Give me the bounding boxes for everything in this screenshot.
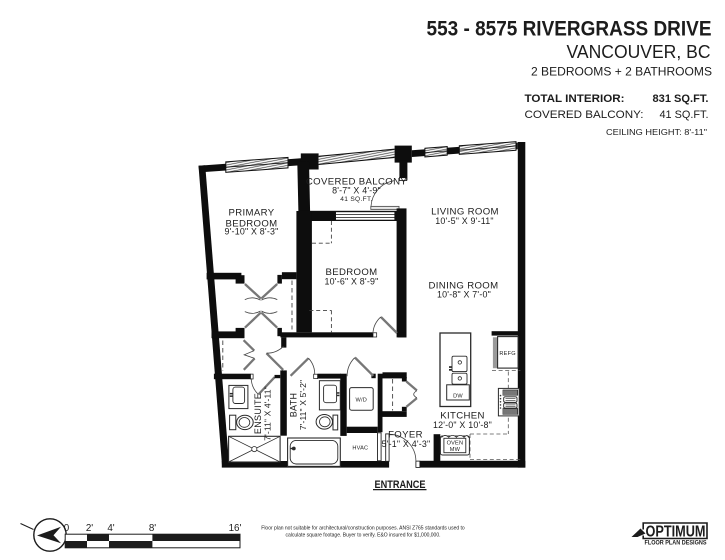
svg-text:OPTIMUM: OPTIMUM: [646, 523, 706, 540]
svg-text:calculate square footage. Buye: calculate square footage. Buyer to verif…: [286, 533, 441, 539]
svg-text:DW: DW: [453, 393, 463, 399]
svg-text:REFG: REFG: [499, 351, 515, 357]
svg-text:9'-10" X 8'-3": 9'-10" X 8'-3": [225, 227, 279, 237]
svg-text:Floor plan not suitable for ar: Floor plan not suitable for architectura…: [261, 526, 465, 532]
svg-text:16': 16': [229, 523, 242, 534]
svg-text:10'-8" X 7'-0": 10'-8" X 7'-0": [437, 290, 491, 300]
svg-text:41 SQ.FT.: 41 SQ.FT.: [660, 109, 709, 121]
svg-text:7'-11" X 5'-2": 7'-11" X 5'-2": [298, 380, 308, 430]
svg-text:41 SQ.FT.: 41 SQ.FT.: [340, 196, 372, 203]
svg-text:553 - 8575 RIVERGRASS DRIVE: 553 - 8575 RIVERGRASS DRIVE: [427, 18, 712, 41]
svg-text:8'-7" X 4'-9": 8'-7" X 4'-9": [332, 185, 381, 195]
svg-text:CEILING HEIGHT: 8'-11": CEILING HEIGHT: 8'-11": [606, 127, 707, 137]
svg-text:BATH: BATH: [288, 393, 298, 418]
svg-text:2 BEDROOMS + 2 BATHROOMS: 2 BEDROOMS + 2 BATHROOMS: [531, 65, 712, 79]
svg-text:0: 0: [64, 523, 70, 534]
svg-text:10'-6" X 8'-9": 10'-6" X 8'-9": [325, 276, 379, 286]
svg-text:PRIMARY: PRIMARY: [229, 208, 275, 219]
svg-text:HVAC: HVAC: [352, 445, 368, 451]
svg-text:TOTAL INTERIOR:: TOTAL INTERIOR:: [525, 93, 625, 105]
svg-text:5'-1" X 4'-3": 5'-1" X 4'-3": [382, 439, 431, 449]
svg-text:COVERED BALCONY:: COVERED BALCONY:: [525, 109, 644, 121]
svg-text:2': 2': [86, 523, 93, 534]
svg-text:OVEN: OVEN: [447, 441, 464, 447]
svg-text:10'-5" X 9'-11": 10'-5" X 9'-11": [435, 216, 493, 226]
svg-text:7'-11" X 4'-11": 7'-11" X 4'-11": [263, 386, 273, 441]
svg-text:4': 4': [107, 523, 114, 534]
svg-text:12'-0" X 10'-8": 12'-0" X 10'-8": [433, 420, 492, 430]
svg-text:VANCOUVER, BC: VANCOUVER, BC: [567, 42, 711, 62]
svg-text:8': 8': [149, 523, 156, 534]
svg-text:W/D: W/D: [356, 398, 367, 404]
svg-text:831 SQ.FT.: 831 SQ.FT.: [653, 93, 709, 105]
svg-text:FLOOR PLAN DESIGNS: FLOOR PLAN DESIGNS: [645, 539, 707, 546]
svg-text:MW: MW: [450, 447, 461, 453]
svg-text:ENSUITE: ENSUITE: [253, 393, 263, 434]
